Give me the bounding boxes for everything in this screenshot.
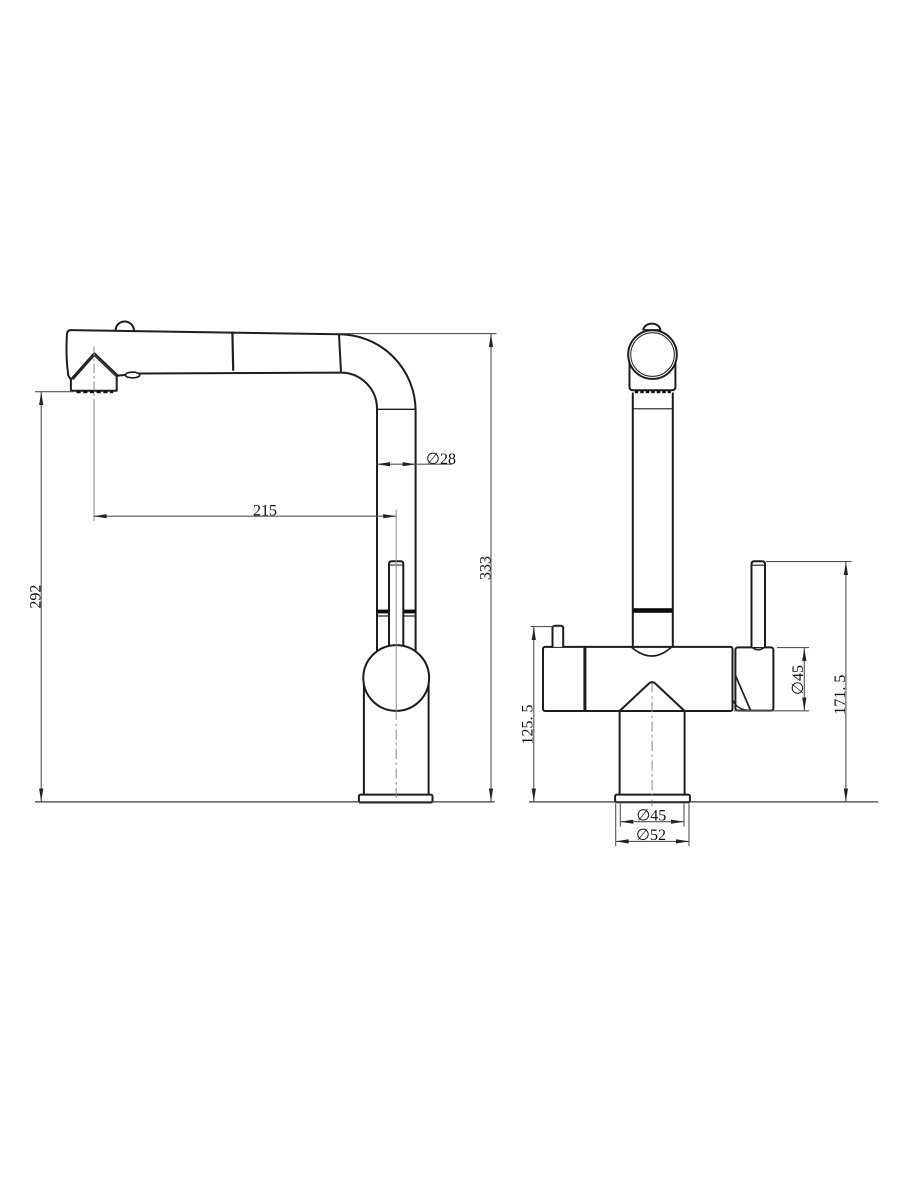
svg-text:215: 215 xyxy=(253,503,277,520)
svg-text:125. 5: 125. 5 xyxy=(519,705,536,745)
svg-text:171. 5: 171. 5 xyxy=(832,675,849,715)
svg-text:∅52: ∅52 xyxy=(636,827,666,844)
svg-text:333: 333 xyxy=(477,556,494,580)
svg-text:∅45: ∅45 xyxy=(790,665,807,695)
svg-text:292: 292 xyxy=(27,585,44,609)
svg-text:∅45: ∅45 xyxy=(636,808,666,825)
svg-text:∅28: ∅28 xyxy=(426,451,456,468)
